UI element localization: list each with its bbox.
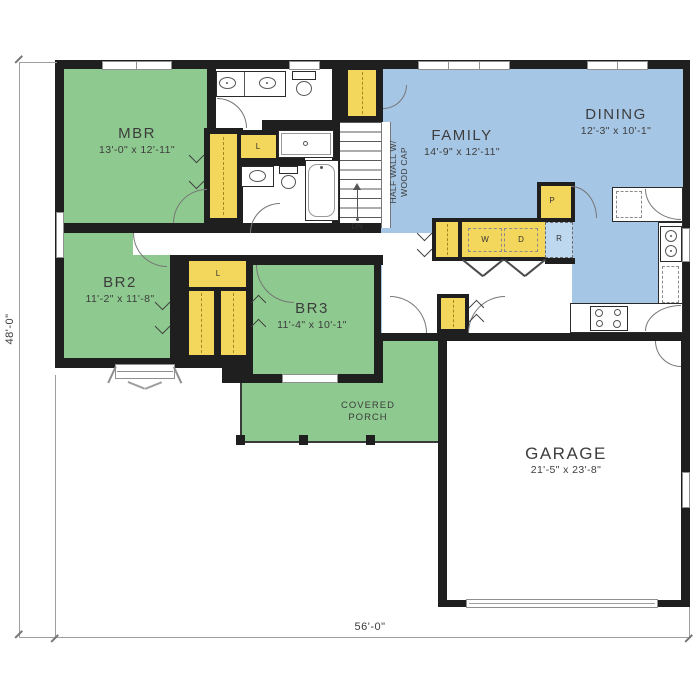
extension-line-left-lower [55, 375, 56, 638]
family-window [418, 61, 510, 70]
linen-bath-label: L [250, 142, 266, 152]
bathtub-faucet [320, 166, 323, 169]
br3-dims: 11'-4" x 10'-1" [242, 319, 382, 332]
coat-closet-line [362, 72, 363, 114]
vanity-divider [244, 72, 245, 96]
kitchen-window [682, 228, 690, 262]
wall-mbr-hall-a [55, 223, 133, 233]
br2-label: BR2 11'-2" x 11'-8" [50, 274, 190, 306]
burner-2 [614, 309, 621, 316]
dining-dims: 12'-3" x 10'-1" [546, 125, 686, 138]
half-wall-label: HALF WALL W/ WOOD CAP [388, 127, 410, 217]
mbr-closet-line [223, 137, 224, 215]
wall-bath-hall-b [280, 223, 332, 233]
porch-post-2 [299, 435, 308, 445]
wall-mbr-bath [207, 60, 216, 130]
toilet-hall-tank [279, 166, 298, 174]
hallbath-sink [249, 170, 266, 182]
dimension-line-left [19, 62, 20, 638]
wall-mbr-hall-c [207, 223, 216, 233]
entry-closet-line [453, 300, 454, 327]
dimension-line-bottom [19, 637, 691, 638]
overall-depth-label: 48'-0" [4, 299, 16, 359]
kitchen-sink-drain-1 [670, 235, 672, 237]
br2-closet-line [201, 293, 202, 353]
counter-upper-dash [616, 191, 642, 218]
mbr-label: MBR 13'-0" x 12'-11" [57, 125, 217, 157]
mbr-dims: 13'-0" x 12'-11" [57, 144, 217, 157]
burner-4 [613, 320, 621, 328]
stairs-arrow-head [353, 183, 361, 190]
stairs-dn-label: DN [347, 222, 367, 232]
garage-dims: 21'-5" x 23'-8" [476, 464, 656, 477]
extension-line-right [689, 607, 690, 638]
stairs-arrow-dot [356, 218, 359, 221]
linen-hall-label: L [210, 269, 226, 279]
br3-closet-line [233, 293, 234, 353]
pantry-label: P [544, 196, 560, 206]
dining-name: DINING [546, 106, 686, 125]
garage-label: GARAGE 21'-5" x 23'-8" [476, 443, 656, 477]
toilet-master-bowl [296, 81, 312, 96]
toilet-hall-bowl [281, 175, 296, 189]
dining-window-mullion [617, 62, 618, 69]
br3-label: BR3 11'-4" x 10'-1" [242, 300, 382, 332]
toilet-master-tank [292, 71, 316, 80]
dining-label: DINING 12'-3" x 10'-1" [546, 106, 686, 138]
hall-corridor [133, 233, 445, 255]
br2-dims: 11'-2" x 11'-8" [50, 293, 190, 306]
vanity-faucet-right [266, 82, 268, 84]
dim-tick-bottom-left [50, 634, 58, 642]
kitchen-sink-drain-2 [670, 250, 672, 252]
floor-plan: MBR 13'-0" x 12'-11" FAMILY 14'-9" x 12'… [0, 0, 700, 700]
wall-br2-hall [170, 255, 178, 358]
dryer-label: D [513, 235, 529, 245]
porch-leg [383, 341, 438, 383]
vanity-faucet-left [226, 82, 228, 84]
mbr-window [102, 61, 172, 70]
family-label: FAMILY 14'-9" x 12'-11" [392, 127, 532, 159]
porch-post-1 [236, 435, 245, 445]
mbr-name: MBR [57, 125, 217, 144]
bathtub-inner [308, 164, 335, 217]
burner-3 [596, 320, 603, 327]
family-dims: 14'-9" x 12'-11" [392, 146, 532, 159]
dim-tick-bottom-right [684, 634, 692, 642]
porch-label-line1: COVERED [328, 400, 408, 412]
porch-edge-left [240, 383, 242, 443]
overall-width-label: 56'-0" [325, 621, 415, 633]
family-name: FAMILY [392, 127, 532, 146]
bath-window [289, 61, 320, 70]
shower-drain [303, 141, 308, 146]
stairs [340, 122, 381, 223]
family-window-mullion-2 [479, 62, 480, 69]
laundry-left-line [447, 224, 448, 255]
br2-bay-roof-line-1 [128, 381, 145, 389]
porch-label: COVERED PORCH [328, 400, 408, 424]
wall-br3-top-b [294, 255, 383, 265]
half-wall-label-line1: HALF WALL W/ [388, 127, 399, 217]
counter-right-dash [662, 266, 679, 303]
wall-mbr-hall-b [167, 223, 173, 233]
extension-line-top-left [19, 62, 57, 63]
wall-bath-hall-a [216, 223, 250, 233]
refrigerator-label: R [551, 234, 567, 244]
half-wall-label-line2: WOOD CAP [399, 127, 410, 217]
garage-window [682, 472, 690, 508]
br3-window [282, 374, 338, 383]
br3-name: BR3 [242, 300, 382, 319]
wall-south-c [505, 333, 655, 341]
porch-edge-bottom [240, 441, 438, 443]
washer-label: W [477, 235, 493, 245]
porch-post-3 [366, 435, 375, 445]
burner-1 [595, 309, 603, 317]
br2-window [56, 212, 64, 258]
family-window-mullion-1 [448, 62, 449, 69]
mbr-window-mullion [136, 62, 137, 69]
br2-bay-window-line [117, 371, 173, 372]
wall-south-b [427, 333, 467, 341]
br2-name: BR2 [50, 274, 190, 293]
wall-fridge-bottom [545, 258, 575, 264]
porch-label-line2: PORCH [328, 412, 408, 424]
wall-south-d [681, 333, 690, 341]
wall-shower-top [262, 120, 334, 130]
wall-south-a [374, 333, 390, 341]
stairs-arrow-stem [357, 190, 358, 219]
garage-name: GARAGE [476, 443, 656, 464]
br2-bay-roof-line-2 [145, 381, 162, 389]
garage-door-line [469, 603, 655, 604]
